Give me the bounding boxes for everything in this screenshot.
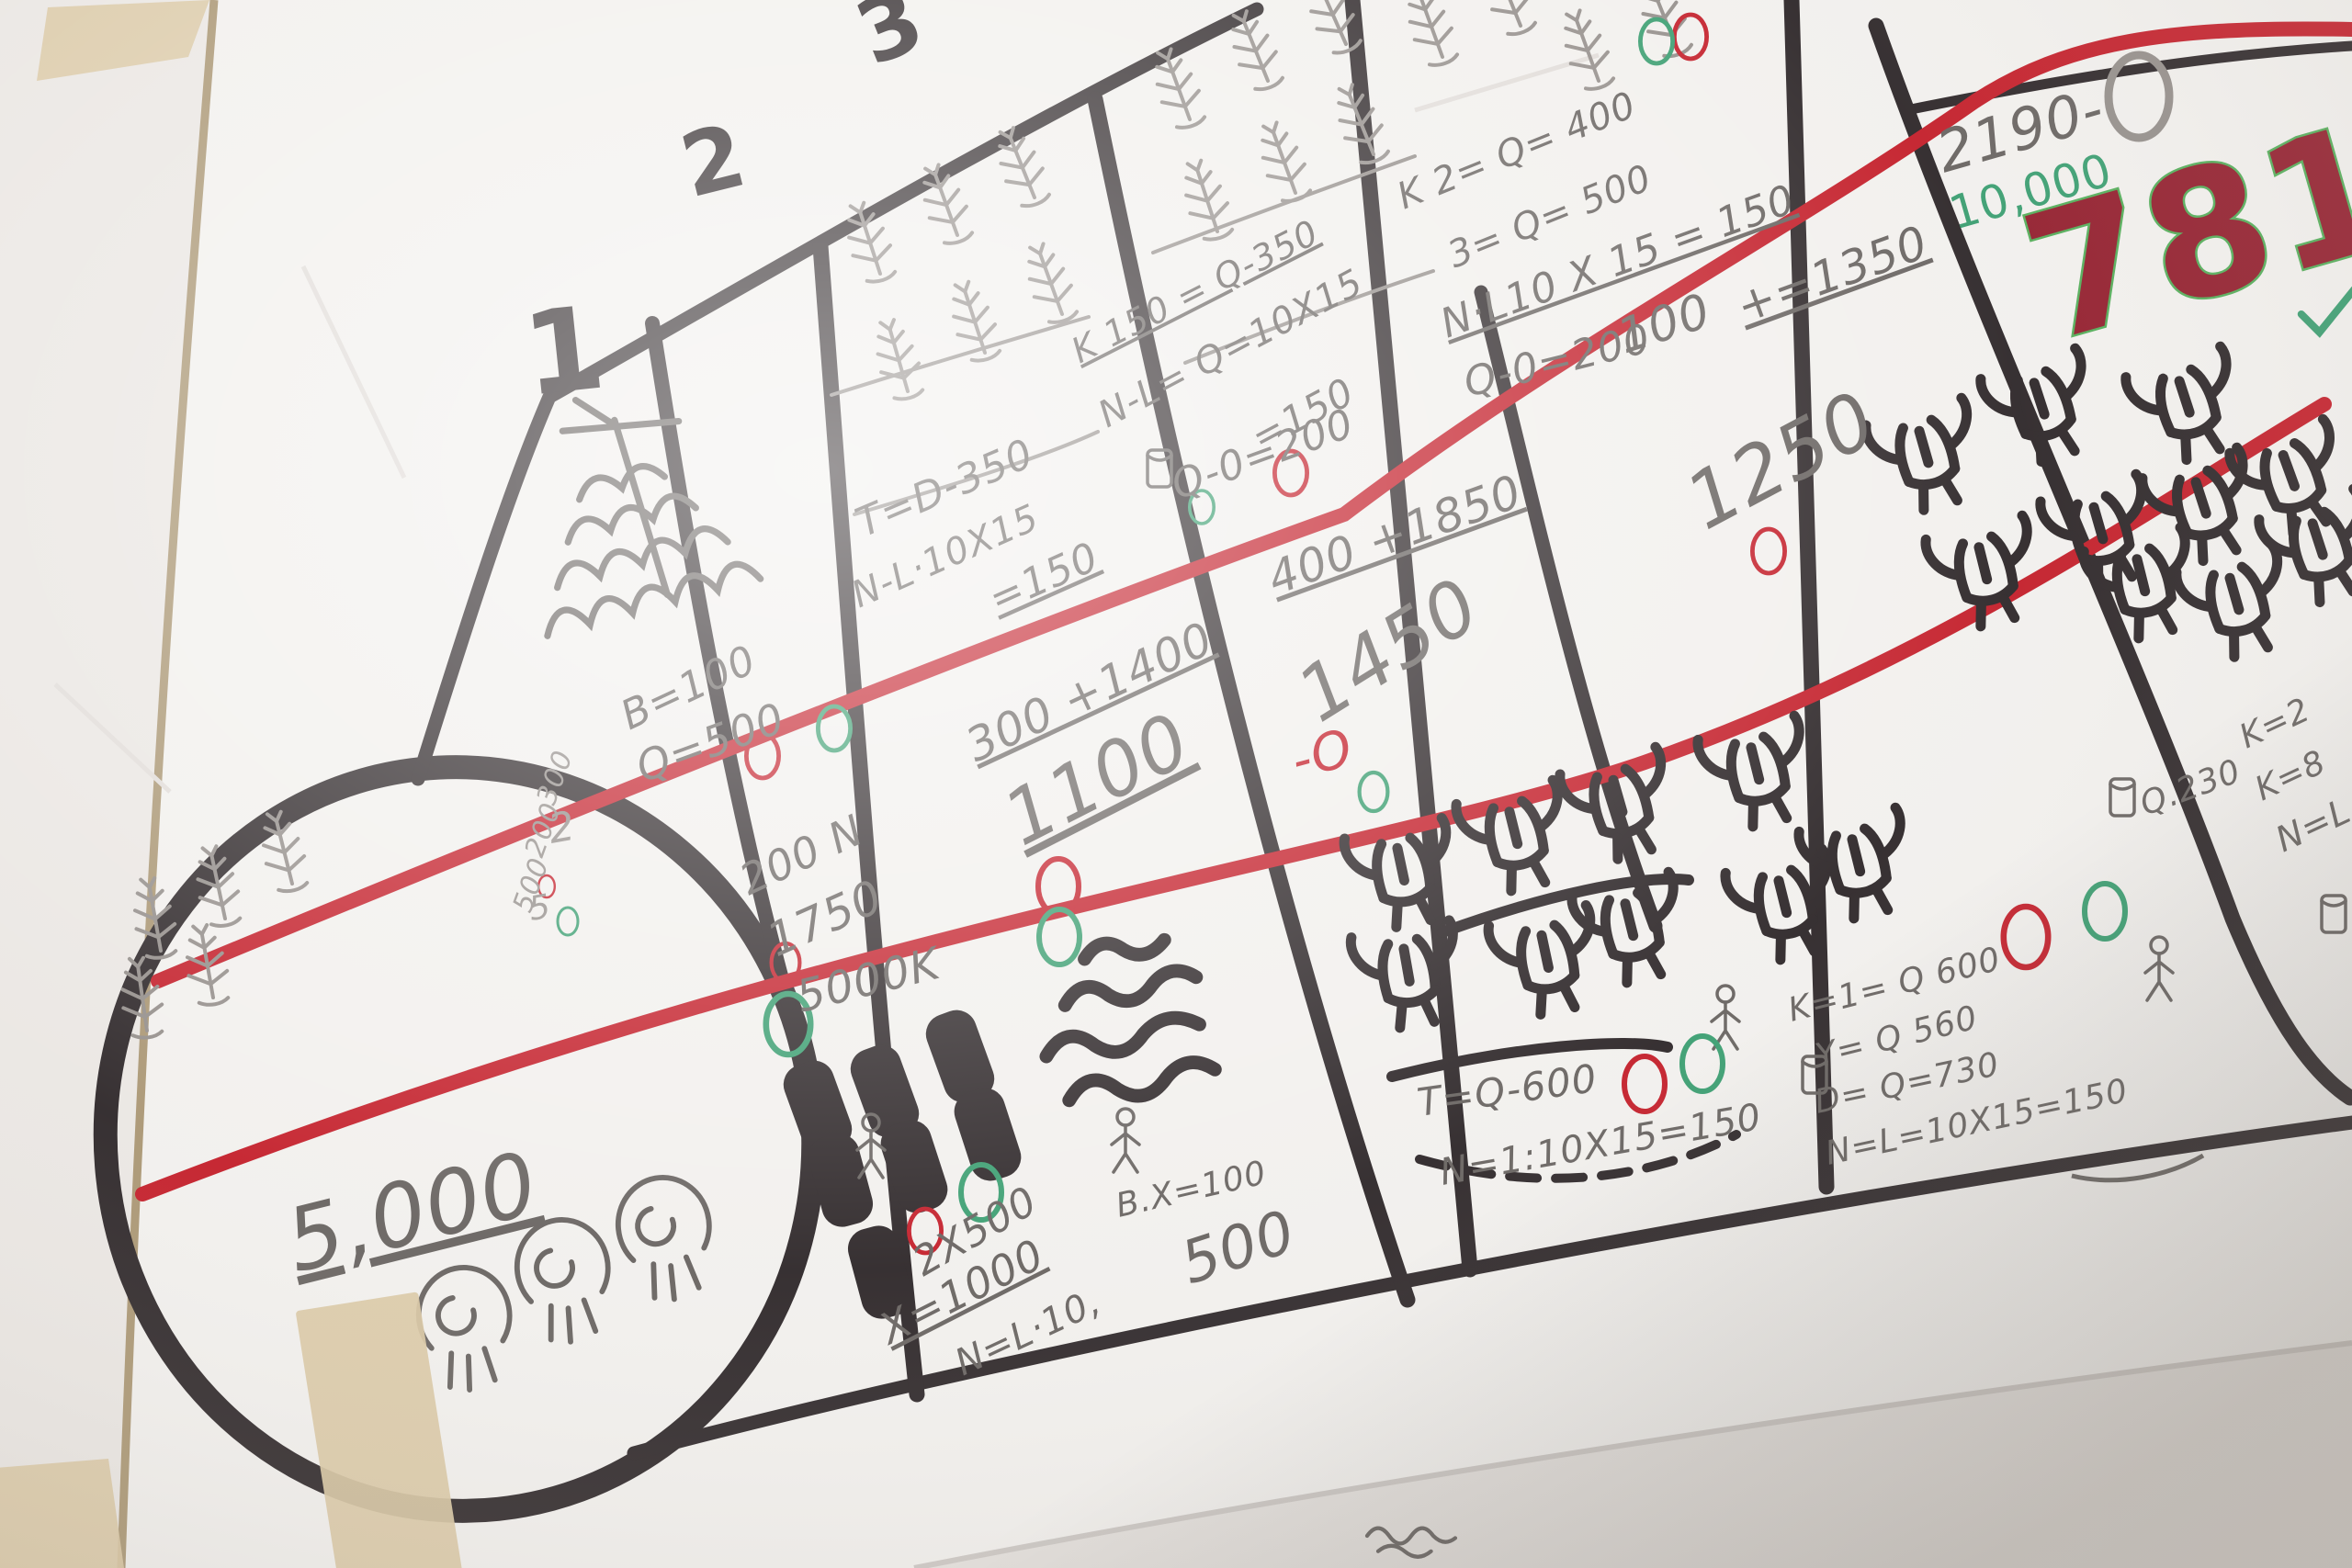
photo-corner-shadow bbox=[0, 0, 2352, 1568]
photo-of-hand-drawn-diagram: 1235,00050020030025B=100Q=500T=D-350N-L·… bbox=[0, 0, 2352, 1568]
foreground-layer bbox=[0, 0, 2352, 1568]
diagram-scene: 1235,00050020030025B=100Q=500T=D-350N-L·… bbox=[0, 0, 2352, 1568]
